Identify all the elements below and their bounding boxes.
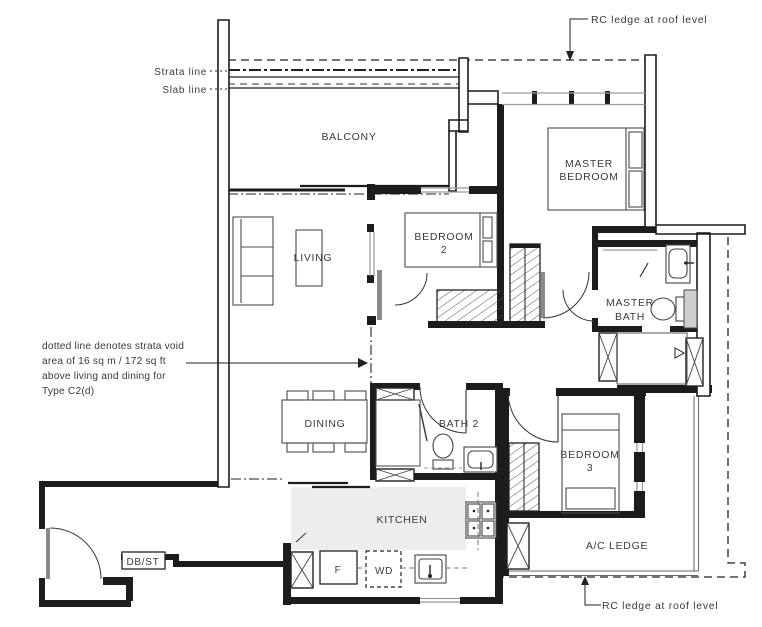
dining-chair bbox=[313, 391, 334, 400]
dining-chair bbox=[313, 443, 334, 452]
master-bedroom-door-leaf bbox=[541, 272, 545, 318]
fridge-label: F bbox=[335, 565, 342, 576]
bedroom3-window bbox=[634, 443, 645, 452]
rc-ledge-bottom-leader bbox=[585, 585, 601, 605]
master-shower bbox=[617, 333, 687, 384]
bath2-vent-top-icon bbox=[376, 388, 414, 400]
bedroom3-window2 bbox=[634, 482, 645, 491]
dining-chair bbox=[345, 443, 366, 452]
entry-door-leaf bbox=[46, 528, 50, 579]
master-bath-door-arc bbox=[563, 290, 594, 321]
master-bedroom-label: MASTER bbox=[565, 158, 613, 170]
svg-text:above living and dining for: above living and dining for bbox=[42, 371, 166, 382]
hob bbox=[466, 502, 496, 538]
master-bath-shaft-right-icon bbox=[686, 338, 703, 386]
bath2-sink bbox=[464, 447, 497, 472]
master-bedroom-door-arc bbox=[543, 272, 589, 318]
svg-text:Type C2(d): Type C2(d) bbox=[42, 386, 94, 397]
kitchen-sink bbox=[415, 555, 446, 583]
arrow-right-icon bbox=[358, 358, 368, 368]
bedroom3-label: BEDROOM bbox=[560, 449, 619, 461]
dining-chair bbox=[287, 443, 308, 452]
bath2-vent-bottom-icon bbox=[376, 469, 414, 481]
ac-ledge-label: A/C LEDGE bbox=[586, 540, 648, 552]
floor-plan-page: RC ledge at roof level RC ledge at roof … bbox=[0, 0, 762, 627]
bedroom2-door-leaf bbox=[377, 270, 382, 320]
strata-line-label: Strata line bbox=[154, 67, 207, 78]
bedroom2-wardrobe bbox=[437, 290, 503, 322]
master-bath-sink bbox=[666, 245, 694, 283]
dining-label: DINING bbox=[305, 418, 346, 430]
svg-text:BATH: BATH bbox=[615, 311, 645, 323]
rc-ledge-top-leader bbox=[570, 19, 588, 51]
svg-text:2: 2 bbox=[441, 244, 448, 256]
kitchen-shaft-icon bbox=[291, 552, 313, 588]
washer-dryer-label: WD bbox=[375, 566, 393, 577]
sofa bbox=[233, 217, 273, 305]
dining-chair bbox=[345, 391, 366, 400]
living-label: LIVING bbox=[294, 252, 333, 264]
bedroom3-door-arc bbox=[508, 392, 558, 442]
rc-ledge-bottom-label: RC ledge at roof level bbox=[602, 600, 718, 612]
rc-ledge-top-label: RC ledge at roof level bbox=[591, 14, 707, 26]
duct bbox=[684, 290, 697, 328]
dining-chair bbox=[287, 391, 308, 400]
master-bath-door-leaf bbox=[640, 263, 648, 277]
ac-ledge-shaft-icon bbox=[507, 523, 529, 569]
entry-door-arc bbox=[50, 528, 101, 579]
bath2-toilet bbox=[433, 434, 453, 469]
floor-plan-canvas: RC ledge at roof level RC ledge at roof … bbox=[0, 0, 762, 627]
balcony-label: BALCONY bbox=[321, 131, 376, 143]
strata-void-note: dotted line denotes strata void bbox=[42, 341, 184, 352]
bath2-shower bbox=[376, 400, 462, 468]
svg-text:3: 3 bbox=[587, 462, 594, 474]
svg-text:area of 16 sq m / 172 sq ft: area of 16 sq m / 172 sq ft bbox=[42, 356, 166, 367]
db-st-label: DB/ST bbox=[127, 557, 160, 568]
shower-head-icon bbox=[675, 348, 684, 358]
slab-line-label: Slab line bbox=[162, 85, 207, 96]
bath2-label: BATH 2 bbox=[439, 418, 479, 430]
master-bath-label: MASTER bbox=[606, 297, 654, 309]
svg-text:BEDROOM: BEDROOM bbox=[559, 171, 618, 183]
bedroom2-label: BEDROOM bbox=[414, 231, 473, 243]
bedroom2-door-arc bbox=[395, 273, 427, 305]
kitchen-label: KITCHEN bbox=[377, 514, 428, 526]
master-bath-shaft-left-icon bbox=[599, 333, 617, 381]
